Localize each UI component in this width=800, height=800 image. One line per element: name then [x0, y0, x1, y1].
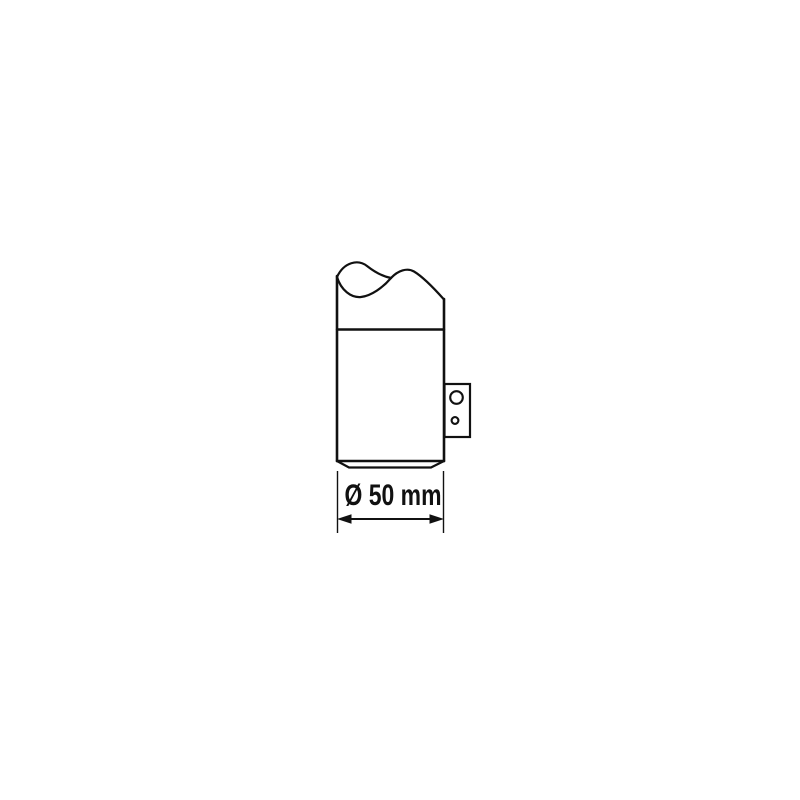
dimension-label: Ø 50 mm — [345, 479, 442, 512]
diameter-dimension: Ø 50 mm — [337, 471, 444, 533]
break-line-wave — [391, 270, 444, 300]
break-line — [337, 262, 444, 299]
technical-drawing-canvas: Ø 50 mm — [0, 0, 800, 800]
part-drawing: Ø 50 mm — [0, 0, 800, 800]
cylinder-body — [337, 276, 444, 468]
break-line-lower-curl — [337, 277, 391, 297]
dimension-arrowhead-left — [337, 514, 352, 524]
mounting-bracket — [445, 384, 471, 437]
break-line-upper-curl — [337, 262, 391, 278]
dimension-arrowhead-right — [430, 514, 445, 524]
